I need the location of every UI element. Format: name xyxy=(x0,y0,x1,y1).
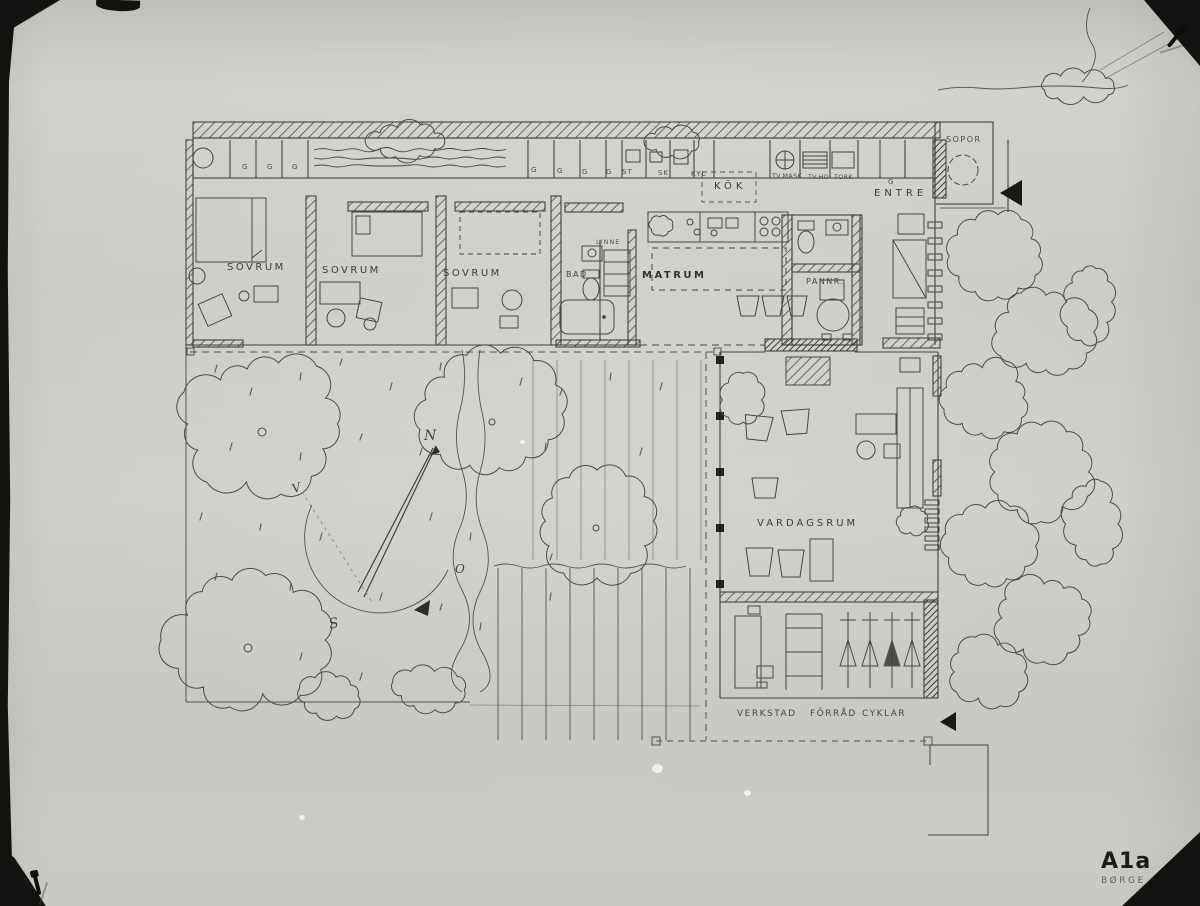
room-label-bad: BAD xyxy=(566,270,588,279)
room-label-verkstad: VERKSTAD xyxy=(737,709,797,719)
closet-mark-g: G xyxy=(582,168,588,176)
room-label-sovrum-3: SOVRUM xyxy=(443,268,502,279)
room-label-sovrum-1: SOVRUM xyxy=(227,262,286,273)
closet-mark-tvmask: TV.MASK. xyxy=(772,173,804,180)
closet-mark-st: ST xyxy=(622,168,633,176)
compass-west-letter: V xyxy=(290,480,303,496)
room-label-sovrum-2: SOVRUM xyxy=(322,265,381,276)
closet-mark-g: G xyxy=(888,178,894,186)
sheet-code: A1a xyxy=(1101,851,1168,873)
closet-mark-g: G xyxy=(606,168,612,176)
closet-mark-g: G xyxy=(531,166,537,174)
closet-mark-g: G xyxy=(242,163,248,171)
room-label-pannr: PANNR. xyxy=(806,277,845,286)
closet-mark-g: G xyxy=(557,167,563,175)
room-label-entre: ENTRE xyxy=(874,188,927,199)
closet-mark-sk: SK xyxy=(658,169,669,177)
room-label-forrad: FÖRRÅD xyxy=(810,709,857,719)
room-label-sopor: SOPOR xyxy=(946,135,982,144)
closet-mark-tork: TORK xyxy=(834,174,853,181)
closet-mark-g: G xyxy=(292,163,298,171)
plan-labels: SOVRUM SOVRUM SOVRUM BAD LINNE MATRUM KÖ… xyxy=(0,0,1200,906)
room-label-vardagsrum: VARDAGSRUM xyxy=(757,518,858,529)
photographed-floor-plan: SOVRUM SOVRUM SOVRUM BAD LINNE MATRUM KÖ… xyxy=(0,0,1200,906)
compass-north-letter: N xyxy=(424,428,436,444)
compass-east-letter: O xyxy=(455,562,465,576)
room-label-cyklar: CYKLAR xyxy=(862,709,906,719)
room-label-matrum: MATRUM xyxy=(642,270,707,281)
room-label-linne: LINNE xyxy=(596,238,620,246)
closet-mark-tvho: TV.HO xyxy=(808,174,829,181)
closet-mark-kyl: KYL xyxy=(691,170,707,178)
room-label-kok: KÖK xyxy=(714,181,746,192)
closet-mark-g: G xyxy=(267,163,273,171)
compass-south-letter: S xyxy=(327,615,340,633)
